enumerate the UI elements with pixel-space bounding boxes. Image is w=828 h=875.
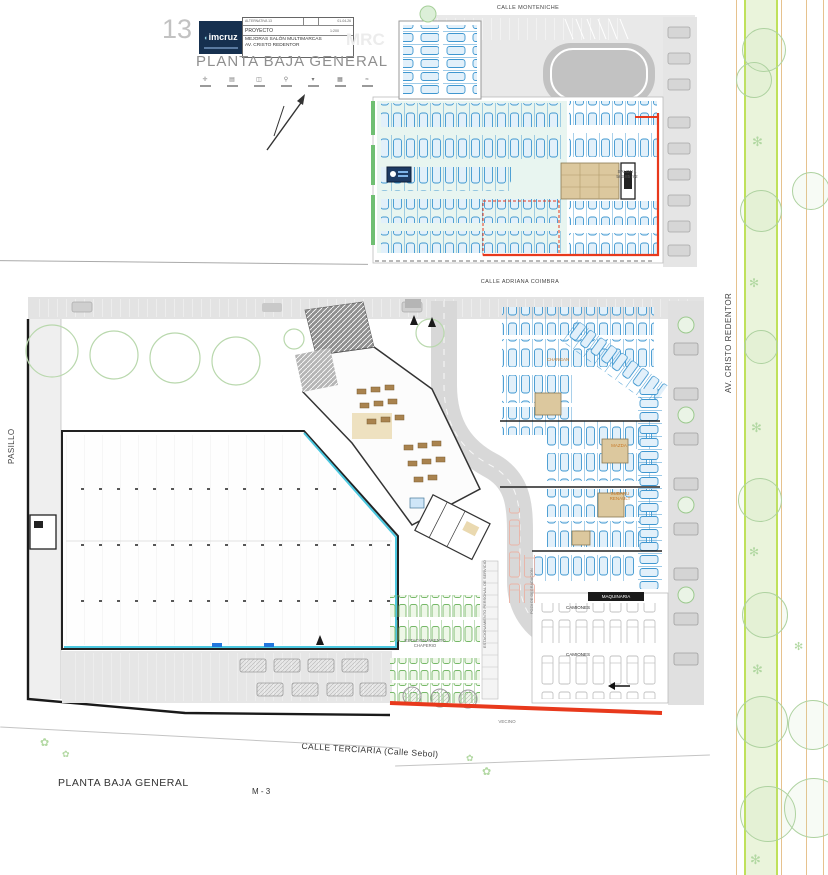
shrub-icon: ✻ <box>749 276 759 290</box>
tree-icon <box>788 700 828 750</box>
footer-plan-caption: PLANTA BAJA GENERAL <box>58 777 189 789</box>
logo-text: imcruz <box>209 32 238 42</box>
drawing-sheet: ✻ ✻ ✻ ✻ ✻ ✻ ✻ 13 ◖imcruz ALTERNATIVA 13 … <box>0 0 828 875</box>
tree-icon <box>744 330 778 364</box>
shrub-icon: ✻ <box>750 852 761 868</box>
tree-icon <box>740 190 782 232</box>
project-name: MEJORAS SALÓN MULTIMARCAS AV. CRISTO RED… <box>243 36 353 50</box>
green-edge-strips <box>371 101 375 245</box>
poza-label: POZA DE DEGRADACION <box>530 568 535 614</box>
shrub-icon: ✻ <box>752 134 763 150</box>
salon1-label: SALON 1583.85 m2 <box>607 169 647 180</box>
street-label-adriana-coimbra: CALLE ADRIANA COIMBRA <box>450 279 590 285</box>
warehouse-forecourt <box>62 651 392 703</box>
camiones-label-a: CAMIONES <box>556 605 600 610</box>
shrub-icon: ✿ <box>62 749 70 760</box>
shrub-icon: ✻ <box>794 640 803 653</box>
tree-icon <box>736 696 788 748</box>
street-edge-line <box>0 260 368 265</box>
road-edge-line <box>736 0 737 875</box>
street-label-monteniche: CALLE MONTENICHE <box>468 5 588 11</box>
legend-icons-row: ✛ ▤ ◫ ⚲ ▾ ▦ ≈ <box>197 77 375 87</box>
personal-servicio-label: ESTACIONAMIENTO PERSONAL DE SERVICIO <box>483 560 488 648</box>
street-label-pasillo: PASILLO <box>7 428 16 464</box>
date-cell: 01-04-26 <box>319 18 353 25</box>
shrub-icon: ✿ <box>466 753 474 764</box>
chaperio-label: ESTACIONAMIENTOCHAPERIO <box>396 638 454 648</box>
project-label: PROYECTO <box>243 28 273 34</box>
warehouse-building <box>62 431 398 649</box>
road-edge-line <box>781 0 782 875</box>
legend-symbol-5: ▾ <box>305 77 321 87</box>
north-arrow-icon <box>255 92 310 154</box>
footer-sheet-ref: M - 3 <box>252 787 270 796</box>
tree-icon <box>736 62 772 98</box>
tree-icon <box>738 478 782 522</box>
legend-symbol-6: ▦ <box>332 77 348 87</box>
maquinaria-label: MAQUINARIA <box>588 592 644 601</box>
logo-swirl-icon: ◖ <box>203 35 207 42</box>
mazda-label: MAZDA <box>602 443 636 448</box>
company-logo: ◖imcruz <box>199 21 242 54</box>
tree-icon <box>742 592 788 638</box>
street-label-cristo-redentor: AV. CRISTO REDENTOR <box>724 293 733 393</box>
shrub-icon: ✻ <box>749 545 759 559</box>
shrub-icon: ✻ <box>751 420 762 436</box>
legend-symbol-1: ✛ <box>197 77 213 87</box>
title-table: ALTERNATIVA 13 01-04-26 PROYECTO 1:200 M… <box>242 17 354 58</box>
upper-site-plan <box>365 5 697 277</box>
shrub-icon: ✻ <box>752 662 763 678</box>
logo-tagline-bar <box>204 47 238 49</box>
red-property-line <box>390 703 662 713</box>
vecino-label: VECINO <box>492 719 522 724</box>
sheet-number: 13 <box>162 14 192 45</box>
alternativa-cell: ALTERNATIVA 13 <box>243 18 304 25</box>
empty-cell <box>304 18 319 25</box>
legend-symbol-3: ◫ <box>251 77 267 87</box>
changan-label: CHANGAN <box>537 357 579 362</box>
tree-icon <box>420 6 436 22</box>
legend-symbol-4: ⚲ <box>278 77 294 87</box>
subaru-renault-label: SUBARURENAULT <box>602 491 638 502</box>
lower-site-plan <box>12 293 722 771</box>
camiones-label-b: CAMIONES <box>556 652 600 657</box>
legend-symbol-2: ▤ <box>224 77 240 87</box>
drawing-title: PLANTA BAJA GENERAL <box>196 53 388 70</box>
shrub-icon: ✿ <box>482 765 491 778</box>
shrub-icon: ✿ <box>40 736 49 749</box>
tree-icon <box>792 172 828 210</box>
